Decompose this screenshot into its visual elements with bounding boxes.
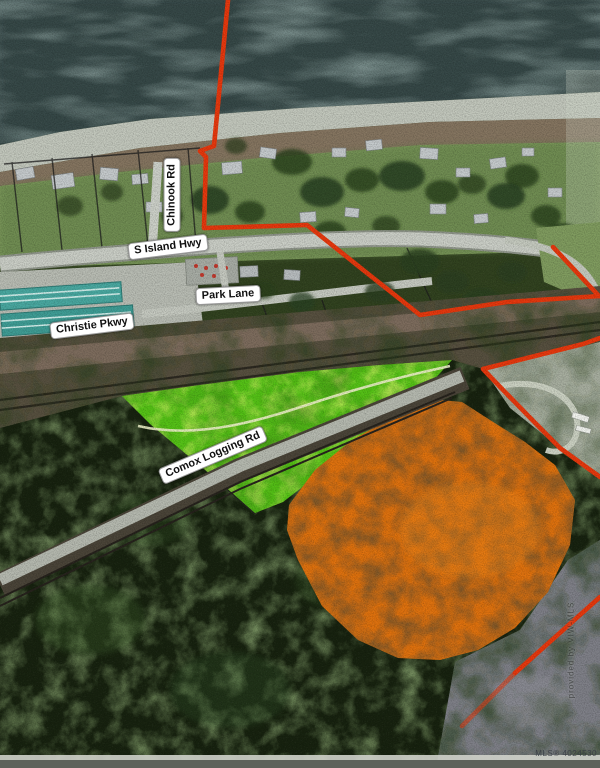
bottom-band — [0, 755, 600, 768]
map-canvas — [0, 0, 600, 768]
road-label-chinook: Chinook Rd — [164, 158, 181, 232]
road-label-chinook-text: Chinook Rd — [166, 164, 178, 226]
photo-grain — [0, 0, 600, 768]
watermark-vertical: provided by VIW-MLS — [567, 602, 576, 699]
aerial-map: Chinook Rd S Island Hwy Park Lane Christ… — [0, 0, 600, 768]
watermark-vertical-text: provided by VIW-MLS — [567, 602, 576, 699]
road-label-park-lane-text: Park Lane — [201, 287, 254, 302]
watermark-mls-text: MLS® 4024530 — [535, 749, 597, 758]
road-label-park-lane: Park Lane — [195, 285, 260, 305]
watermark-mls-number: MLS® 4024530 — [535, 749, 597, 758]
